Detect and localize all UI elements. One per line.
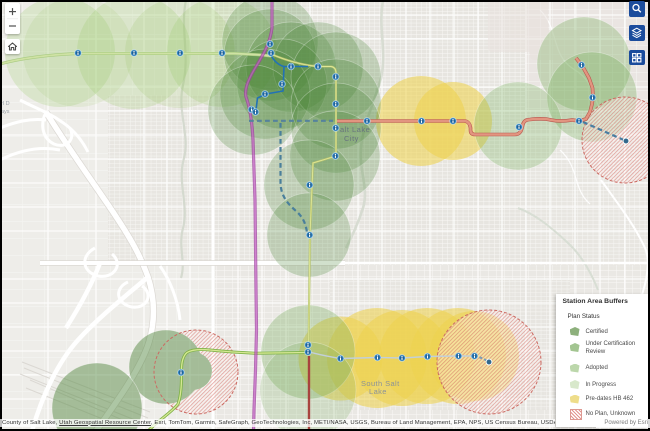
svg-text:rl D: rl D <box>2 101 10 107</box>
svg-text:City: City <box>344 134 359 143</box>
svg-text:alt Lake: alt Lake <box>340 125 370 134</box>
svg-text:Lake: Lake <box>369 387 387 396</box>
svg-text:ays: ays <box>2 109 10 115</box>
